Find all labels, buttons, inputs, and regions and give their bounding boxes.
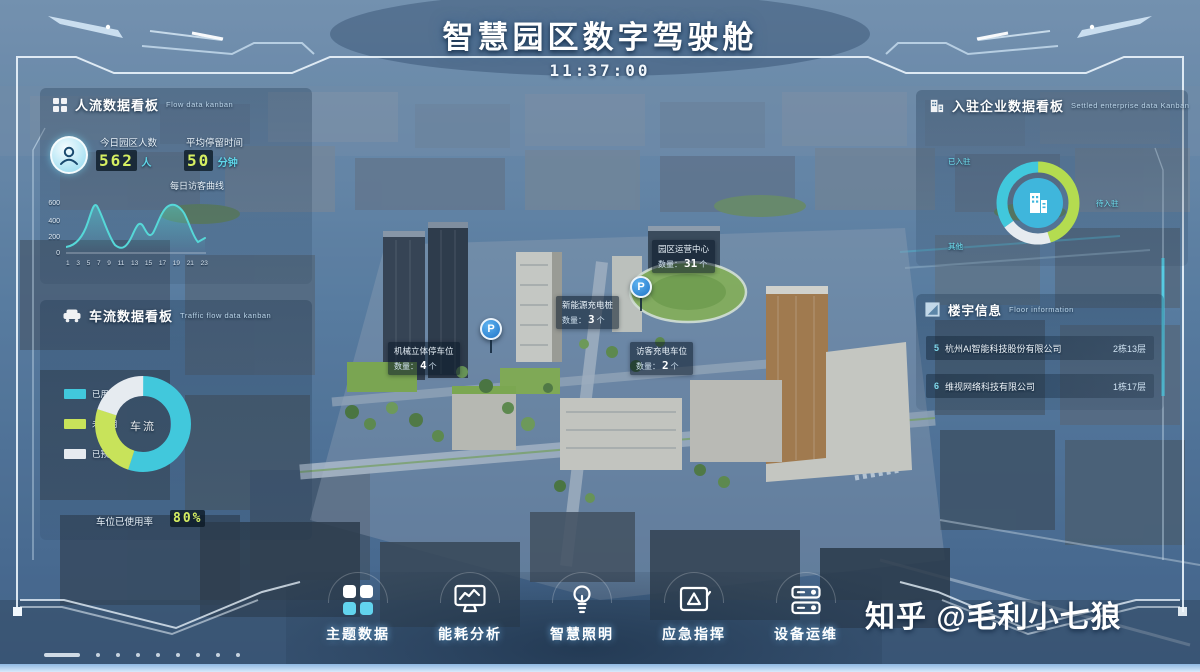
parking-usage-label: 车位已使用率 xyxy=(96,514,153,528)
visitor-curve-title: 每日访客曲线 xyxy=(170,179,224,192)
nav-item-theme-data[interactable]: 主题数据 xyxy=(312,574,404,662)
visitor-count-label: 今日园区人数 xyxy=(100,135,157,149)
stay-time-value: 50 分钟 xyxy=(184,150,238,171)
bottom-strip xyxy=(0,664,1200,672)
enterprise-ring-label-1: 已入驻 xyxy=(948,156,971,167)
visitor-chart-xticks: 13 57 911 1315 1719 2123 xyxy=(66,260,208,267)
charging-marker-icon: P xyxy=(630,276,652,298)
map-tooltip-visitor-parking: 访客充电车位 数量：2个 xyxy=(630,342,693,375)
stay-time-label: 平均停留时间 xyxy=(186,135,243,149)
traffic-donut-center: 车流 xyxy=(93,418,193,434)
floor-info-icon xyxy=(924,301,941,318)
visitor-line-chart: 600 400 200 0 13 57 911 1315 1719 2123 xyxy=(44,198,270,274)
map-tooltip-charger: 新能源充电桩 数量：3个 xyxy=(556,296,619,329)
enterprise-panel-header: 入驻企业数据看板 Settled enterprise data Kanban xyxy=(928,96,1189,115)
flow-panel-subtitle: Flow data kanban xyxy=(166,100,233,109)
watermark: 知乎 @毛利小七狼 xyxy=(865,592,1122,636)
page-title: 智慧园区数字驾驶舱 xyxy=(0,12,1200,57)
enterprise-panel-subtitle: Settled enterprise data Kanban xyxy=(1071,101,1189,110)
building-row-1[interactable]: 5 杭州AI智能科技股份有限公司 2栋13层 xyxy=(926,336,1154,360)
visitor-avatar xyxy=(50,136,88,174)
nav-item-energy-analysis[interactable]: 能耗分析 xyxy=(424,574,516,662)
enterprise-ring-label-2: 待入驻 xyxy=(1096,198,1119,209)
building-panel-subtitle: Floor information xyxy=(1009,305,1074,314)
device-ops-icon xyxy=(788,582,824,618)
traffic-panel-title: 车流数据看板 xyxy=(89,306,173,325)
flow-data-icon xyxy=(52,97,68,113)
nav-item-emergency-command[interactable]: 应急指挥 xyxy=(648,574,740,662)
theme-data-icon xyxy=(340,582,376,618)
legend-swatch-unused xyxy=(64,419,86,429)
enterprise-donut xyxy=(990,155,1086,251)
enterprise-ring-label-3: 其他 xyxy=(948,241,963,252)
building-panel-header: 楼宇信息 Floor information xyxy=(924,300,1074,319)
clock: 11:37:00 xyxy=(0,61,1200,80)
map-marker-parking[interactable]: P xyxy=(480,318,502,353)
smart-park-dashboard: 智慧园区数字驾驶舱 11:37:00 人流数据看板 Flow data kanb… xyxy=(0,0,1200,672)
parking-usage-value: 80% xyxy=(170,509,205,527)
map-tooltip-center: 园区运营中心 数量：31个 xyxy=(652,240,715,273)
legend-swatch-used xyxy=(64,389,86,399)
map-tooltip-parking: 机械立体停车位 数量：4个 xyxy=(388,342,460,375)
nav-item-smart-lighting[interactable]: 智慧照明 xyxy=(536,574,628,662)
bottom-nav: 主题数据 能耗分析 智慧照明 xyxy=(292,574,872,662)
map-marker-charging[interactable]: P xyxy=(630,276,652,311)
building-row-2[interactable]: 6 维视网络科技有限公司 1栋17层 xyxy=(926,374,1154,398)
flow-panel-header: 人流数据看板 Flow data kanban xyxy=(52,95,233,114)
legend-swatch-reserved xyxy=(64,449,86,459)
parking-marker-icon: P xyxy=(480,318,502,340)
traffic-panel-header: 车流数据看板 Traffic flow data kanban xyxy=(62,306,271,325)
enterprise-panel-title: 入驻企业数据看板 xyxy=(952,96,1064,115)
car-icon xyxy=(62,308,82,323)
traffic-donut: 车流 xyxy=(93,374,193,474)
visitor-count-value: 562 人 xyxy=(96,150,151,171)
enterprise-building-icon xyxy=(928,97,945,114)
traffic-panel-subtitle: Traffic flow data kanban xyxy=(180,311,271,320)
nav-item-device-ops[interactable]: 设备运维 xyxy=(760,574,852,662)
flow-panel-title: 人流数据看板 xyxy=(75,95,159,114)
smart-lighting-icon xyxy=(564,582,600,618)
emergency-command-icon xyxy=(676,582,712,618)
pager-dots xyxy=(44,653,240,657)
person-icon xyxy=(57,143,81,167)
building-panel-title: 楼宇信息 xyxy=(948,300,1002,319)
enterprise-donut-ring xyxy=(990,155,1086,251)
energy-analysis-icon xyxy=(452,582,488,618)
visitor-curve xyxy=(66,200,210,258)
